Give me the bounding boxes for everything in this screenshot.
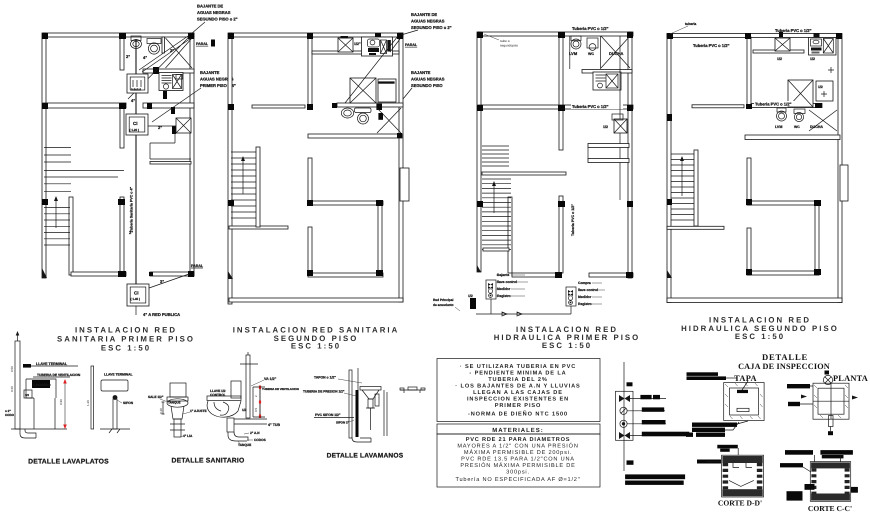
svg-text:1/2: 1/2 [603,125,608,129]
svg-text:TAPA: TAPA [734,374,757,383]
svg-text:1/2: 1/2 [468,294,473,298]
svg-text:0.30: 0.30 [159,408,163,414]
svg-text:TUBERIA DE VENTILACION: TUBERIA DE VENTILACION [37,373,81,377]
svg-text:LLAVE TERMINAL: LLAVE TERMINAL [104,373,133,377]
svg-text:CORTE C-C': CORTE C-C' [808,504,852,513]
svg-text:WC: WC [588,52,594,56]
svg-text:ESC 1:50: ESC 1:50 [101,344,151,353]
svg-text:-NORMA DE DIEÑO NTC 1500: -NORMA DE DIEÑO NTC 1500 [468,411,568,418]
svg-text:2": 2" [170,48,174,53]
svg-text:SEGUNDO PISO: SEGUNDO PISO [411,83,443,88]
svg-text:0.60: 0.60 [10,386,14,392]
svg-text:WC: WC [794,125,800,129]
svg-text:0.90: 0.90 [59,399,63,405]
svg-text:PRESIÓN MÁXIMA PERMISIBLE DE: PRESIÓN MÁXIMA PERMISIBLE DE [460,462,575,469]
svg-text:sube a: sube a [500,39,510,43]
svg-text:AGUAS NEGRAS: AGUAS NEGRAS [197,10,231,15]
svg-text:0.6x0.6: 0.6x0.6 [131,88,141,92]
svg-text:1/2: 1/2 [777,57,782,61]
svg-text:Tuberia PVC o 1/2": Tuberia PVC o 1/2" [775,28,812,33]
svg-text:INSTALACION RED: INSTALACION RED [75,326,177,335]
svg-text:Tuberia PVC o 1/2": Tuberia PVC o 1/2" [572,26,609,31]
svg-text:3": 3" [160,279,164,284]
svg-text:DETALLE LAVAPLATOS: DETALLE LAVAPLATOS [28,459,109,466]
svg-text:DUCHA: DUCHA [609,51,624,56]
svg-text:AGUAS NEGRAS: AGUAS NEGRAS [411,19,445,24]
svg-text:ESC 1:50: ESC 1:50 [291,342,341,351]
svg-text:PVC RDE 13.5 PARA 1/2"CON UNA: PVC RDE 13.5 PARA 1/2"CON UNA [461,456,575,463]
svg-text:BAJANTE: BAJANTE [411,70,431,75]
svg-text:MATERIALES:: MATERIALES: [492,427,544,434]
svg-text:DETALLE: DETALLE [762,352,808,362]
svg-text:CONTROL: CONTROL [210,393,226,397]
svg-text:2" A.N: 2" A.N [250,431,260,435]
svg-text:( 1.40 ): ( 1.40 ) [131,297,141,301]
svg-text:segundopiso: segundopiso [500,44,518,48]
svg-text:1/2": 1/2" [354,42,361,46]
svg-text:1/2: 1/2 [818,85,823,89]
svg-text:TUBERIA DE VENTILACION: TUBERIA DE VENTILACION [262,387,299,391]
svg-text:2": 2" [126,54,130,59]
svg-text:2": 2" [158,125,162,130]
svg-text:2": 2" [129,230,133,235]
svg-text:SALE 1/2": SALE 1/2" [148,395,164,399]
svg-text:Tuberia PVC o 1/2": Tuberia PVC o 1/2" [755,102,792,107]
svg-text:· SE UTILIZARA TUBERIA EN PVC: · SE UTILIZARA TUBERIA EN PVC [460,364,576,370]
svg-text:4" A RED PUBLICA: 4" A RED PUBLICA [143,312,180,317]
svg-text:CODO: CODO [5,413,15,417]
svg-text:Registro: Registro [578,302,592,306]
svg-text:DETALLE LAVAMANOS: DETALLE LAVAMANOS [327,453,404,460]
svg-text:DUCHA: DUCHA [810,125,823,129]
svg-text:· LOS BAJANTES DE A.N Y LLUVIA: · LOS BAJANTES DE A.N Y LLUVIAS [455,384,580,390]
svg-text:0.50: 0.50 [10,366,14,372]
svg-text:4" TUB: 4" TUB [268,423,280,427]
svg-text:INSPECCION EXISTENTES EN: INSPECCION EXISTENTES EN [467,397,569,403]
svg-text:SIFON: SIFON [123,401,134,405]
svg-text:SIFON 2": SIFON 2" [336,421,350,425]
svg-text:PVC SIFON 1/2": PVC SIFON 1/2" [315,413,341,417]
svg-text:Tubería NO ESPECIFICADA AF Ø=1: Tubería NO ESPECIFICADA AF Ø=1/2" [455,476,580,483]
svg-text:CAJA DE INSPECCION: CAJA DE INSPECCION [738,362,830,371]
svg-text:300psi.: 300psi. [506,469,530,476]
svg-text:TUBERIA DE PRESION 1/2": TUBERIA DE PRESION 1/2" [303,390,345,394]
svg-text:4": 4" [131,98,135,103]
svg-text:AGUAS NEGRAS: AGUAS NEGRAS [411,77,445,82]
svg-text:Tuberia Sanitaria PVC o 4": Tuberia Sanitaria PVC o 4" [130,187,134,232]
svg-text:LLEGAN A LAS CAJAS DE: LLEGAN A LAS CAJAS DE [473,390,563,396]
svg-text:PARAL: PARAL [191,264,204,268]
svg-text:ESC 1:50: ESC 1:50 [735,332,785,341]
svg-text:Red Principal: Red Principal [433,298,453,302]
svg-text:llave control: llave control [578,288,598,292]
svg-text:1.20: 1.20 [86,400,90,406]
svg-text:BAJANTE DE: BAJANTE DE [411,12,437,17]
svg-text:CI: CI [133,121,138,126]
svg-text:Tuberia PVC o 1/2": Tuberia PVC o 1/2" [572,104,609,109]
svg-text:BAJANTE: BAJANTE [200,70,220,75]
svg-text:LVM: LVM [569,51,578,56]
svg-text:TAPON o 1/2": TAPON o 1/2" [314,376,336,380]
svg-text:PLANTA: PLANTA [833,374,868,383]
svg-text:PRIMER PISO: PRIMER PISO [495,403,542,409]
svg-text:DETALLE SANITARIO: DETALLE SANITARIO [171,458,244,465]
svg-text:BAJANTE DE: BAJANTE DE [197,4,223,9]
svg-text:1/2: 1/2 [810,57,815,61]
svg-text:1/2: 1/2 [242,408,247,412]
svg-text:PARAL: PARAL [405,43,418,47]
svg-text:TANQUE: TANQUE [168,401,180,405]
svg-text:MAYORES A 1/2" CON UNA PRESIÓN: MAYORES A 1/2" CON UNA PRESIÓN [457,443,578,450]
svg-text:TUBERIA DEL 2%: TUBERIA DEL 2% [488,377,548,383]
svg-text:( 1.20 ): ( 1.20 ) [130,128,140,132]
svg-text:CI: CI [134,291,139,296]
svg-text:ESC 1:50: ESC 1:50 [542,341,592,350]
svg-text:MÁXIMA PERMISIBLE DE 200psi.: MÁXIMA PERMISIBLE DE 200psi. [464,449,572,456]
svg-text:4": 4" [143,55,147,60]
svg-text:SANITARIA PRIMER PISO: SANITARIA PRIMER PISO [57,335,195,344]
svg-text:SEGUNDO PISO o 2": SEGUNDO PISO o 2" [197,17,238,22]
svg-text:1" AJUSTE: 1" AJUSTE [190,409,207,413]
svg-text:LLAVE TERMINAL: LLAVE TERMINAL [36,362,68,366]
svg-text:Medidor: Medidor [578,295,592,299]
svg-text:0.5: 0.5 [254,407,258,412]
svg-text:LAVADERO: LAVADERO [34,383,52,387]
svg-text:- PENDIENTE MINIMA DE LA: - PENDIENTE MINIMA DE LA [469,371,566,377]
svg-text:CORTE D-D': CORTE D-D' [718,499,762,508]
svg-text:tuberia: tuberia [685,22,696,26]
svg-text:LVM: LVM [775,125,782,129]
svg-text:de acueducto: de acueducto [433,303,454,307]
svg-text:4" LIA: 4" LIA [183,434,193,438]
svg-text:PARAL: PARAL [196,42,209,46]
svg-text:VA 1/2": VA 1/2" [264,377,277,381]
svg-text:Compra: Compra [578,281,591,285]
svg-text:Tuberia PVC o 1/2": Tuberia PVC o 1/2" [693,43,730,48]
svg-text:Tuberia PVC o 1/2": Tuberia PVC o 1/2" [571,204,575,236]
svg-text:PVC RDE 21 PARA DIAMETROS: PVC RDE 21 PARA DIAMETROS [466,437,571,443]
svg-text:SEGUNDO PISO o 2": SEGUNDO PISO o 2" [411,25,452,30]
svg-text:1/2: 1/2 [25,393,29,397]
svg-text:CODOS: CODOS [254,438,266,442]
